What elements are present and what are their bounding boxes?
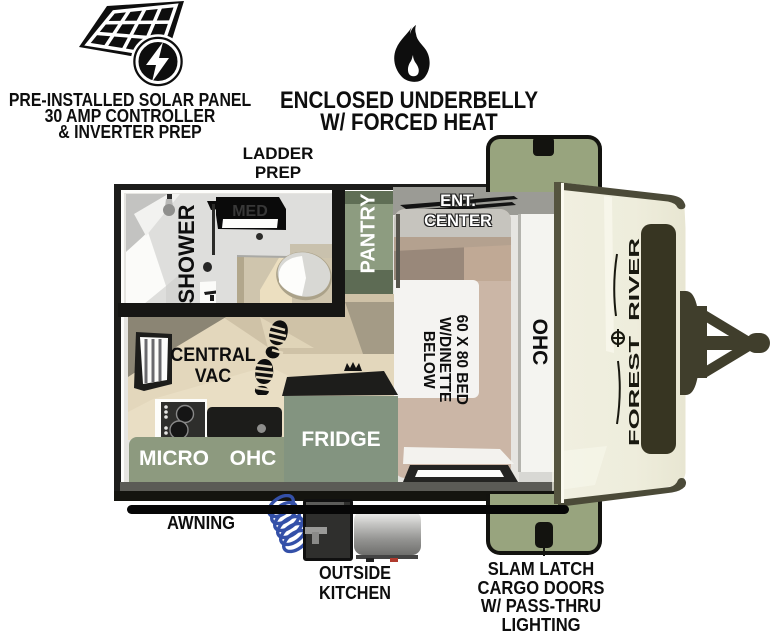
svg-text:FOREST RIVER: FOREST RIVER <box>626 238 643 446</box>
svg-text:MED: MED <box>232 203 268 220</box>
